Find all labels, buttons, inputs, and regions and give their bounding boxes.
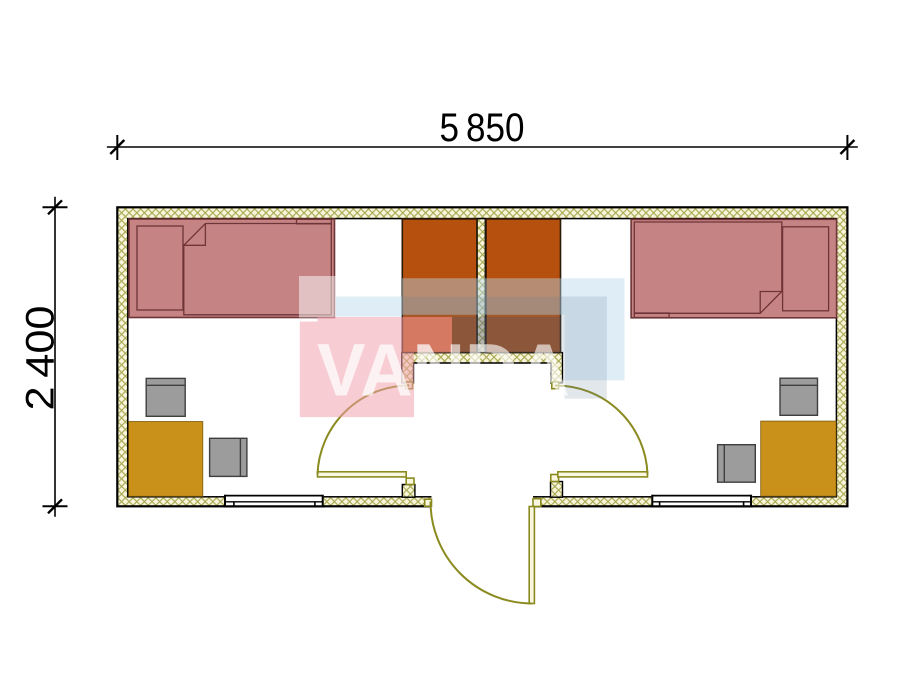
svg-text:2 400: 2 400 xyxy=(19,306,63,411)
svg-text:5 850: 5 850 xyxy=(440,106,525,150)
